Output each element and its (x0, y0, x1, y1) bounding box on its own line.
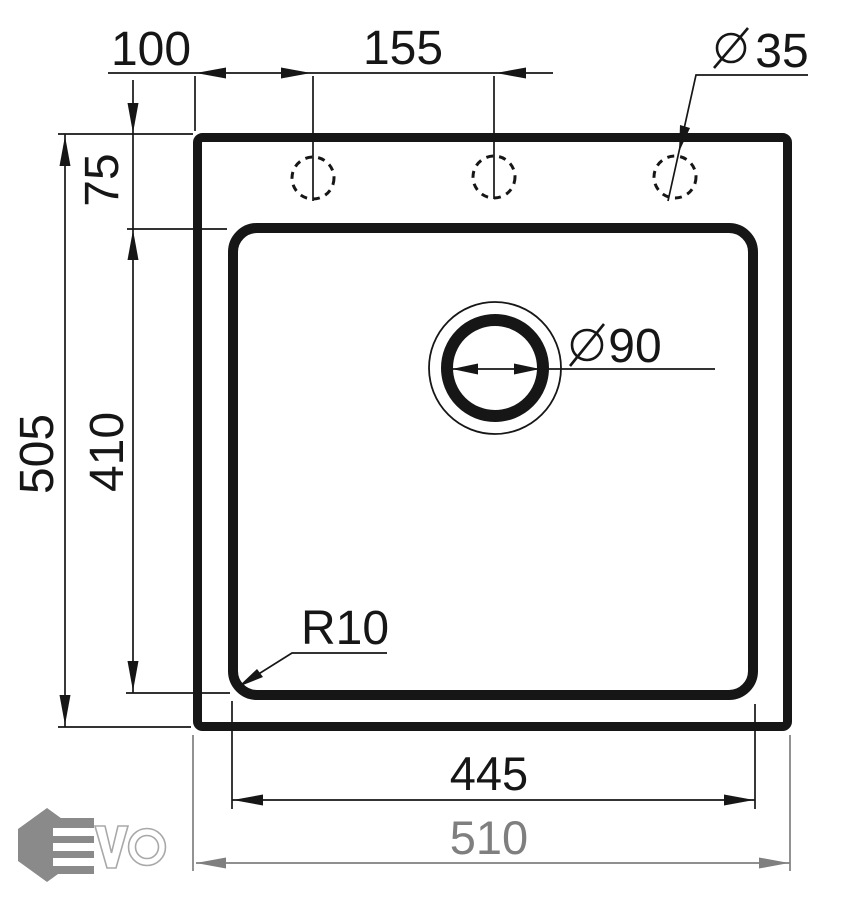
arrow-icon (128, 661, 139, 691)
dim-label-410: 410 (81, 412, 134, 492)
logo-letter-e (53, 818, 94, 874)
arrow-icon (724, 795, 754, 806)
dim-label-35: 35 (755, 25, 808, 78)
arrow-icon (128, 230, 139, 260)
dim-label-75: 75 (76, 153, 129, 206)
diameter-symbol-icon (570, 324, 604, 366)
dim-label-510: 510 (450, 811, 528, 864)
diameter-symbol-icon (714, 28, 748, 68)
arrow-icon (196, 68, 226, 79)
arrow-icon (452, 364, 478, 375)
dim-label-90: 90 (608, 320, 661, 373)
arrow-icon (128, 103, 139, 133)
arrow-icon (233, 795, 263, 806)
technical-drawing-canvas: 100 155 35 75 505 410 90 R10 445 510 (0, 0, 841, 900)
dim-label-445: 445 (450, 747, 528, 800)
arrow-icon (759, 858, 789, 869)
arrow-icon (60, 136, 71, 166)
arrow-icon (281, 68, 311, 79)
arrow-icon (196, 858, 226, 869)
dim-label-100: 100 (111, 23, 191, 76)
logo-letter-o (129, 829, 166, 866)
dim-label-155: 155 (363, 22, 443, 75)
arrow-icon (60, 695, 71, 725)
radius-leader-line (238, 653, 387, 687)
arrow-icon (514, 364, 540, 375)
arrow-icon (238, 669, 263, 687)
evo-logo (18, 808, 166, 882)
tap-hole-circle (654, 156, 696, 198)
dim-label-505: 505 (11, 414, 64, 494)
drain-hole (429, 302, 561, 434)
logo-letter-v (95, 826, 128, 868)
arrow-icon (496, 68, 526, 79)
sink-dimension-drawing: 100 155 35 75 505 410 90 R10 445 510 (0, 0, 841, 900)
dim-label-r10: R10 (301, 602, 389, 655)
